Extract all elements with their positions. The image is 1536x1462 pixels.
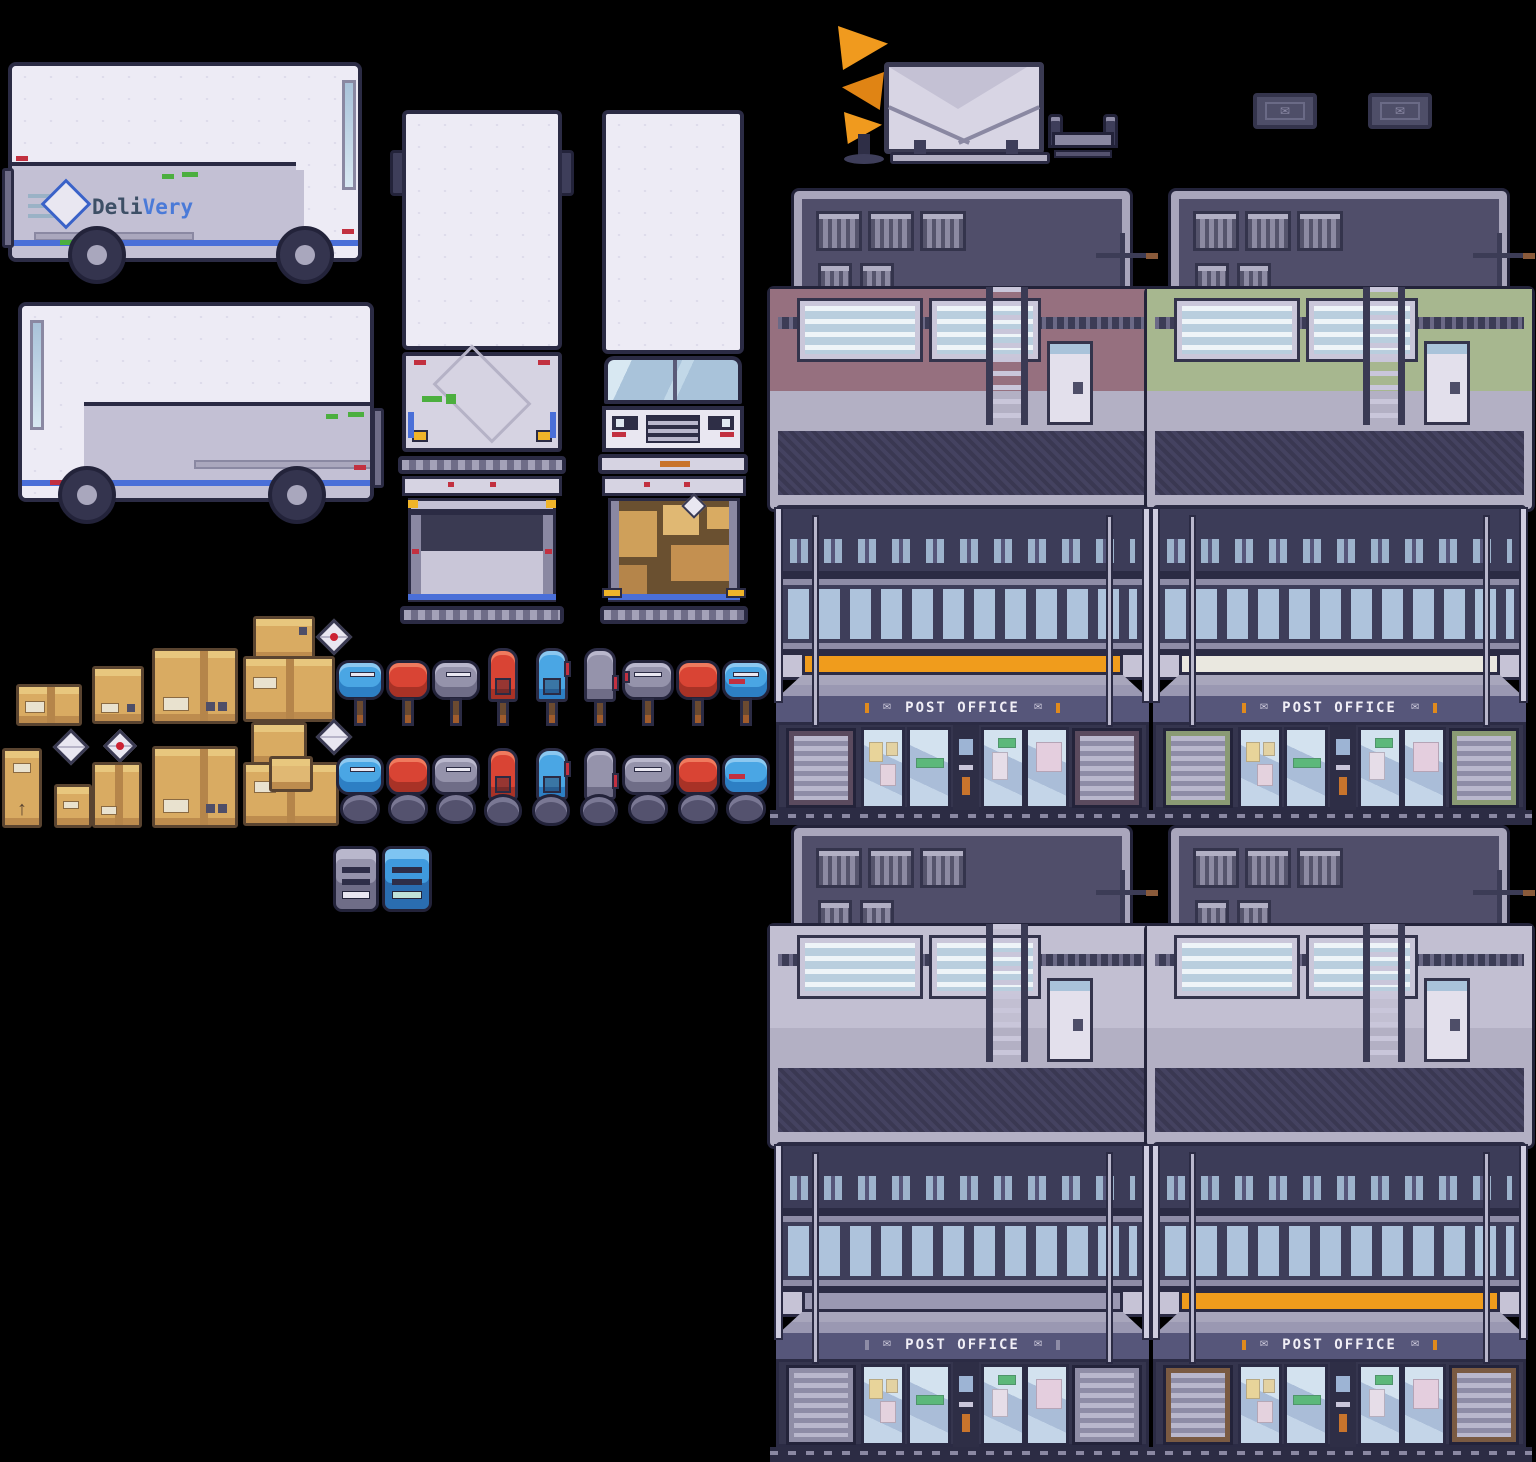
awning: ✉ POST OFFICE ✉ [1153,1312,1526,1359]
envelope-icon: ✉ [1260,1340,1268,1350]
post-office-sign-text: POST OFFICE [905,700,1020,716]
truck-wheel [58,466,116,524]
shop-window [1238,727,1282,809]
awning-pole [1483,515,1490,727]
ac-unit [1193,211,1239,251]
ac-unit [1245,848,1291,888]
truck-windshield-side [30,320,44,430]
facade-door [1047,978,1093,1062]
mailbox-side-gray [432,660,480,700]
cargo-interior-packages [608,498,740,602]
arrow-up-icon: ↑ [17,799,27,819]
storefront-window-band [1153,1212,1526,1290]
truck-bumper [400,606,564,624]
upper-facade [1147,926,1532,1146]
facade-door [1424,978,1470,1062]
ac-unit-small [1237,263,1271,291]
shop-window [1358,727,1402,809]
mailbox-front-red [488,748,518,800]
ac-unit [816,848,862,888]
shop-front [1153,722,1526,810]
awning-pole [1189,1152,1196,1364]
storefront-stripe [1153,653,1526,675]
mailbox-topdown-gray [333,846,379,912]
awning-pole [1519,1144,1528,1340]
shop-window [861,1364,905,1446]
envelope-icon: ✉ [1034,1340,1042,1350]
doormat-envelope: ✉ [1368,93,1432,129]
awning-pole [1151,507,1160,703]
mailbox-side-gray-left [622,755,674,795]
ladder [986,924,1028,1062]
mailbox-front-blue [536,648,568,702]
window-shutter [1075,731,1139,805]
ac-unit-small [860,900,894,928]
envelope-small-sealed [103,729,137,763]
shop-front [1153,1359,1526,1447]
facade-window [800,301,920,359]
ac-unit [816,211,862,251]
mailbox-front-red [488,648,518,702]
mailbox-side-blue [336,755,384,795]
shop-door [953,725,979,813]
post-office-sign: ✉ POST OFFICE ✉ [798,1334,1126,1356]
facade-window [1177,301,1297,359]
ac-unit-small [818,900,852,928]
shop-window [907,1364,951,1446]
upper-facade [770,926,1155,1146]
truck-rear-open-packages [600,476,748,626]
logo-envelope-icon [40,184,86,230]
facade-window [1177,938,1297,996]
ac-unit [920,211,966,251]
envelope-icon: ✉ [1411,1340,1419,1350]
awning: ✉ POST OFFICE ✉ [1153,675,1526,722]
truck-rear-step [372,408,384,488]
post-office-sign: ✉ POST OFFICE ✉ [1175,1334,1503,1356]
mailbox-side-blue [336,660,384,700]
cardboard-box-tall: ↑ [2,748,42,828]
mailbox-side-red-left [676,660,720,700]
shop-window [1025,1364,1069,1446]
awning-pole [774,507,783,703]
awning-pole [812,1152,819,1364]
awning-pole [1483,1152,1490,1364]
shop-door [1330,1362,1356,1450]
cardboard-box-small [92,666,144,724]
truck-rear-closed [398,110,566,474]
window-shutter [1166,731,1230,805]
truck-rear-door [402,352,562,452]
shop-window [1284,1364,1328,1446]
truck-grille [646,415,700,443]
envelope-mini [316,719,353,756]
truck-rear-step [2,168,14,248]
mailbox-side-red [386,755,430,795]
awning: ✉ POST OFFICE ✉ [776,675,1149,722]
ladder [1363,287,1405,425]
cardboard-box-small [16,684,82,726]
mailbox-side-gray-left [622,660,674,700]
envelope-icon: ✉ [1034,703,1042,713]
shop-door [1330,725,1356,813]
awning-pole [1189,515,1196,727]
shop-window [861,727,905,809]
ac-unit-small [860,263,894,291]
truck-wheel [268,466,326,524]
post-office-building-mauve: ✉ POST OFFICE ✉ [770,185,1155,825]
truck-bumper [398,456,566,474]
ac-unit-small [1195,263,1229,291]
shop-window [981,1364,1025,1446]
mailbox-front-blue [536,748,568,800]
storefront-window-band [776,1212,1149,1290]
post-office-building-rust: ✉ POST OFFICE ✉ [1147,822,1532,1462]
ac-unit [1245,211,1291,251]
awning-pole [1519,507,1528,703]
truck-cab-face [602,406,744,452]
parcel-stack [243,616,343,726]
cargo-interior-empty [408,512,556,602]
awning-pole [1142,507,1151,703]
shop-window [1025,727,1069,809]
post-office-sign-text: POST OFFICE [1282,700,1397,716]
truck-windshield-side [342,80,356,190]
shop-window [981,727,1025,809]
cardboard-box-large [152,648,238,724]
post-office-sign: ✉ POST OFFICE ✉ [798,697,1126,719]
truck-rear-open-empty [398,476,566,626]
ac-unit [1297,848,1343,888]
window-shutter [1452,731,1516,805]
window-shutter [789,731,853,805]
cardboard-box-large [152,746,238,828]
window-shutter [1075,1368,1139,1442]
storefront: ✉ POST OFFICE ✉ [776,1142,1149,1462]
ac-unit [868,848,914,888]
storefront-window-band [1153,575,1526,653]
truck-front [598,110,748,474]
envelope-icon: ✉ [1260,703,1268,713]
storefront: ✉ POST OFFICE ✉ [1153,1142,1526,1462]
storefront-stripe [1153,1290,1526,1312]
envelope-icon: ✉ [883,703,891,713]
facade-door [1047,341,1093,425]
ladder [1363,924,1405,1062]
awning-pole [1106,515,1113,727]
post-office-sign: ✉ POST OFFICE ✉ [1175,697,1503,719]
truck-cargo-box [12,66,304,166]
awning-pole [1106,1152,1113,1364]
mailbox-topdown-blue [382,846,432,912]
upper-facade [1147,289,1532,509]
shop-front [776,722,1149,810]
truck-wheel [68,226,126,284]
awning-pole [774,1144,783,1340]
shop-front [776,1359,1149,1447]
envelope-icon: ✉ [1411,703,1419,713]
shop-door [953,1362,979,1450]
mailbox-side-red-left [676,755,720,795]
logo-text-very: Very [143,195,194,219]
horn-statue [836,22,890,164]
mailbox-side-red [386,660,430,700]
awning-pole [812,515,819,727]
truck-bumper [600,606,748,624]
ac-unit-small [818,263,852,291]
ac-unit [920,848,966,888]
shop-window [1402,1364,1446,1446]
truck-front-bumper [598,454,748,474]
sprite-sheet-canvas: { "scene": { "description": "pixel-art s… [0,0,1536,1440]
window-shutter [1166,1368,1230,1442]
storefront-stripe [776,653,1149,675]
truck-windshield [604,356,742,404]
awning-pole [1151,1144,1160,1340]
upper-facade [770,289,1155,509]
storefront-window-band [776,575,1149,653]
parcel-stack [243,722,347,830]
cardboard-box-medium [92,762,142,828]
mailbox-side-blue-left [722,755,770,795]
cardboard-box-flat [54,784,92,828]
awning-pole [1142,1144,1151,1340]
ac-unit-small [1237,900,1271,928]
window-shutter [789,1368,853,1442]
rolled-door [408,498,556,512]
post-office-sign-text: POST OFFICE [905,1337,1020,1353]
delivery-logo: DeliVery [40,184,193,230]
awning: ✉ POST OFFICE ✉ [776,1312,1149,1359]
shop-window [1402,727,1446,809]
delivery-truck-side-right: DeliVery [8,58,370,290]
mailbox-back-gray [584,748,616,800]
delivery-truck-side-left [10,298,382,530]
envelope-mini [316,619,353,656]
storefront: ✉ POST OFFICE ✉ [1153,505,1526,825]
storefront: ✉ POST OFFICE ✉ [776,505,1149,825]
window-shutter [1452,1368,1516,1442]
post-office-sign-text: POST OFFICE [1282,1337,1397,1353]
facade-door [1424,341,1470,425]
post-office-building-plain: ✉ POST OFFICE ✉ [770,822,1155,1462]
storefront-stripe [776,1290,1149,1312]
ac-unit [868,211,914,251]
mailbox-back-gray [584,648,616,702]
ac-unit [1193,848,1239,888]
envelope-signboard [884,62,1044,154]
post-office-building-sage: ✉ POST OFFICE ✉ [1147,185,1532,825]
ladder [986,287,1028,425]
logo-text-deli: Deli [92,195,143,219]
facade-window [800,938,920,996]
ac-unit [1297,211,1343,251]
parcel-cart [1048,114,1118,158]
truck-wheel [276,226,334,284]
ac-unit-small [1195,900,1229,928]
mailbox-side-gray [432,755,480,795]
envelope-small [53,729,90,766]
shop-window [1238,1364,1282,1446]
shop-window [1358,1364,1402,1446]
shop-window [907,727,951,809]
doormat-envelope: ✉ [1253,93,1317,129]
shop-window [1284,727,1328,809]
envelope-icon: ✉ [883,1340,891,1350]
mailbox-side-blue-left [722,660,770,700]
